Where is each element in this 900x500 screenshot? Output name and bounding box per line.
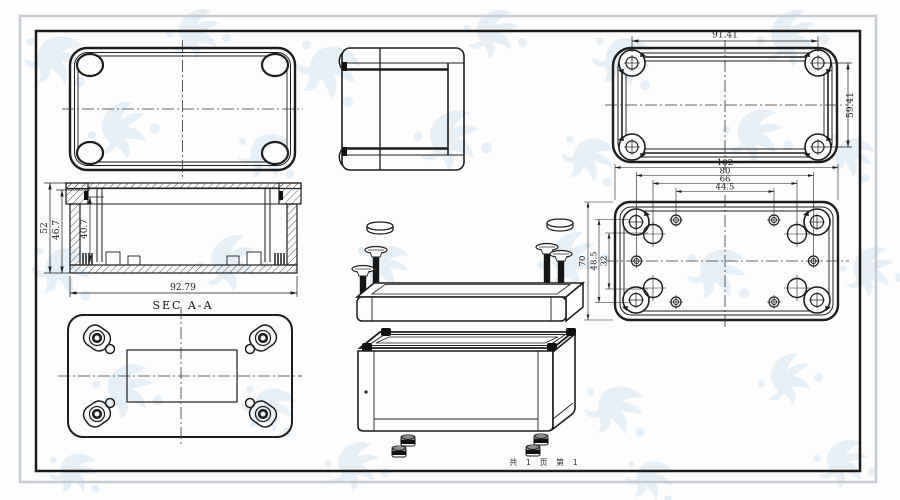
dim-text-cover-width: 91.41 [712,31,738,41]
dim-text-48-5: 48.5 [590,252,600,271]
dim-text-40-7: 40.7 [80,219,90,239]
dim-text-cover-height: 59.41 [846,92,856,118]
dim-text-46-7: 46.7 [52,220,62,240]
section-label: SEC A-A [152,299,213,312]
drawing-canvas: 91.41 59.41 [0,0,900,500]
dim-text-32: 32 [600,256,610,267]
dim-text-52: 52 [40,222,50,233]
dim-text-44-5: 44.5 [716,183,735,193]
dim-text-70: 70 [578,256,588,267]
exploded-lid [357,283,583,321]
drawing-sheet: 91.41 59.41 [0,0,900,500]
footer-page-text: 共 1 页 第 1 [509,457,580,467]
dim-text-92-79: 92.79 [170,283,196,293]
